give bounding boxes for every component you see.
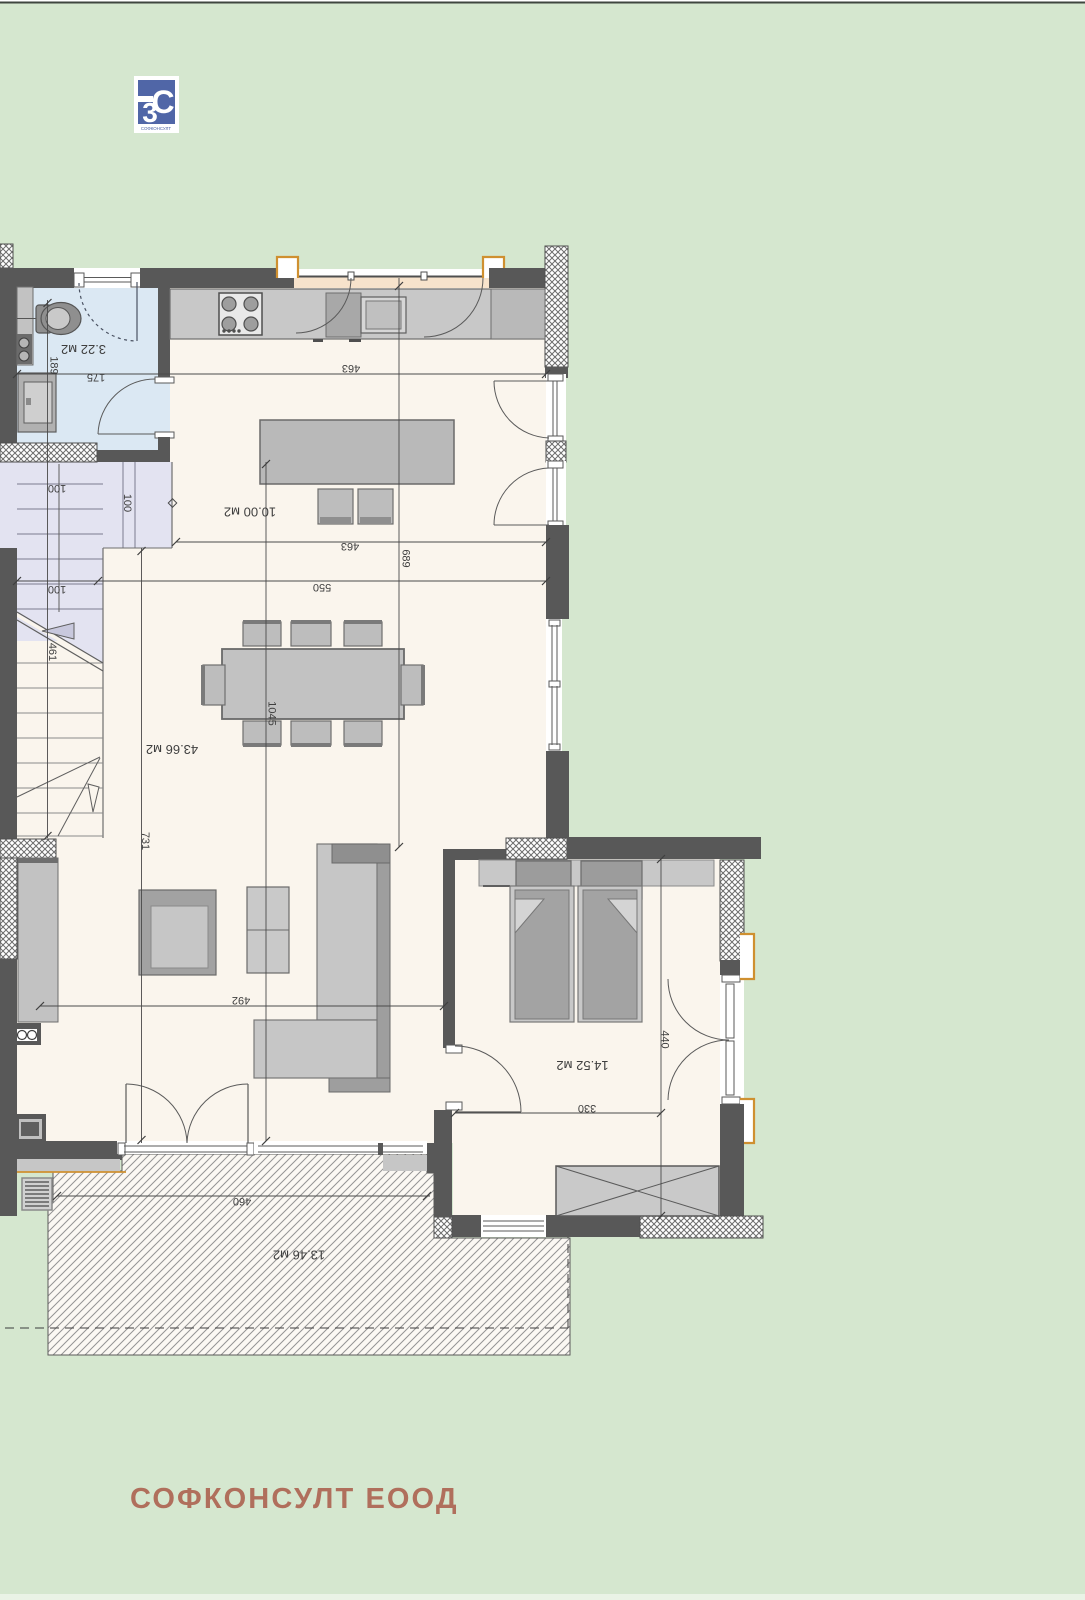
svg-text:175: 175 [87,371,105,383]
svg-text:3.22 м2: 3.22 м2 [61,342,106,357]
svg-text:189: 189 [48,356,60,374]
svg-text:10.00 м2: 10.00 м2 [224,504,276,519]
svg-text:СОФКОНСУЛТ ЕООД: СОФКОНСУЛТ ЕООД [130,1483,459,1515]
svg-text:13.46 м2: 13.46 м2 [273,1247,325,1262]
svg-text:43.66 м2: 43.66 м2 [146,742,198,757]
svg-text:100: 100 [121,494,133,512]
svg-text:550: 550 [313,581,331,593]
svg-text:100: 100 [48,482,66,494]
svg-text:492: 492 [232,994,250,1006]
svg-text:440: 440 [659,1030,671,1048]
svg-text:СОФКОНСУЛТ: СОФКОНСУЛТ [141,126,171,131]
svg-text:330: 330 [578,1102,596,1114]
svg-text:460: 460 [233,1195,251,1207]
svg-text:100: 100 [48,583,66,595]
svg-text:463: 463 [341,540,359,552]
svg-text:3: 3 [142,97,158,128]
svg-text:689: 689 [400,549,412,567]
svg-text:463: 463 [342,362,360,374]
svg-text:14.52 м2: 14.52 м2 [556,1058,608,1073]
svg-text:461: 461 [46,643,58,661]
svg-text:731: 731 [139,832,151,850]
svg-text:1045: 1045 [266,701,278,725]
